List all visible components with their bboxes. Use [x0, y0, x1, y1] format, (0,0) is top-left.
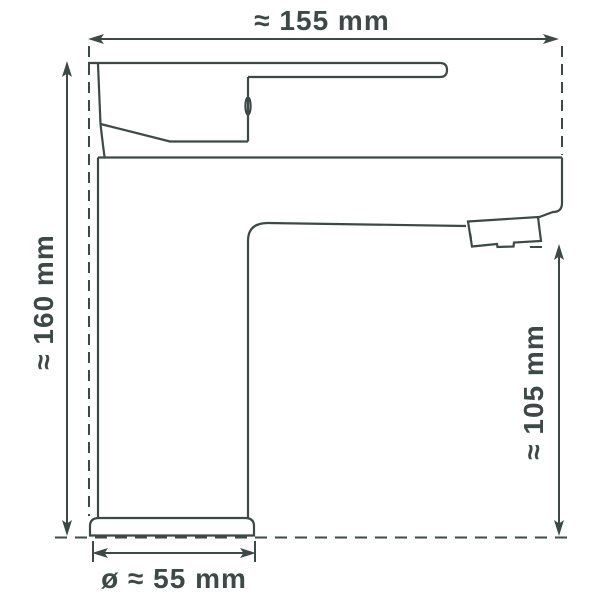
- faucet-handle-left-edge: [98, 64, 101, 124]
- faucet-base: [90, 518, 254, 536]
- width-dimension-label: ≈ 155 mm: [212, 5, 432, 37]
- dimension-lines: [55, 39, 575, 562]
- base-diameter-dimension-label: ø ≈ 55 mm: [64, 563, 284, 595]
- faucet-handle-underside: [101, 124, 249, 142]
- faucet-spout-underside: [248, 223, 466, 241]
- aerator-outline: [468, 217, 541, 247]
- spout-height-dimension-label: ≈ 105 mm: [518, 292, 550, 492]
- technical-drawing: [0, 0, 600, 600]
- height-dimension-label: ≈ 160 mm: [28, 202, 60, 402]
- aerator-notch: [470, 233, 471, 239]
- faucet-handle-front-edge: [101, 124, 105, 157]
- faucet-handle-lever: [88, 63, 447, 77]
- faucet-outline: [88, 63, 562, 536]
- faucet-dimension-diagram: ≈ 155 mm ≈ 160 mm ≈ 105 mm ø ≈ 55 mm: [0, 0, 600, 600]
- dimension-arrowheads: [62, 34, 564, 558]
- faucet-spout-end: [538, 158, 562, 218]
